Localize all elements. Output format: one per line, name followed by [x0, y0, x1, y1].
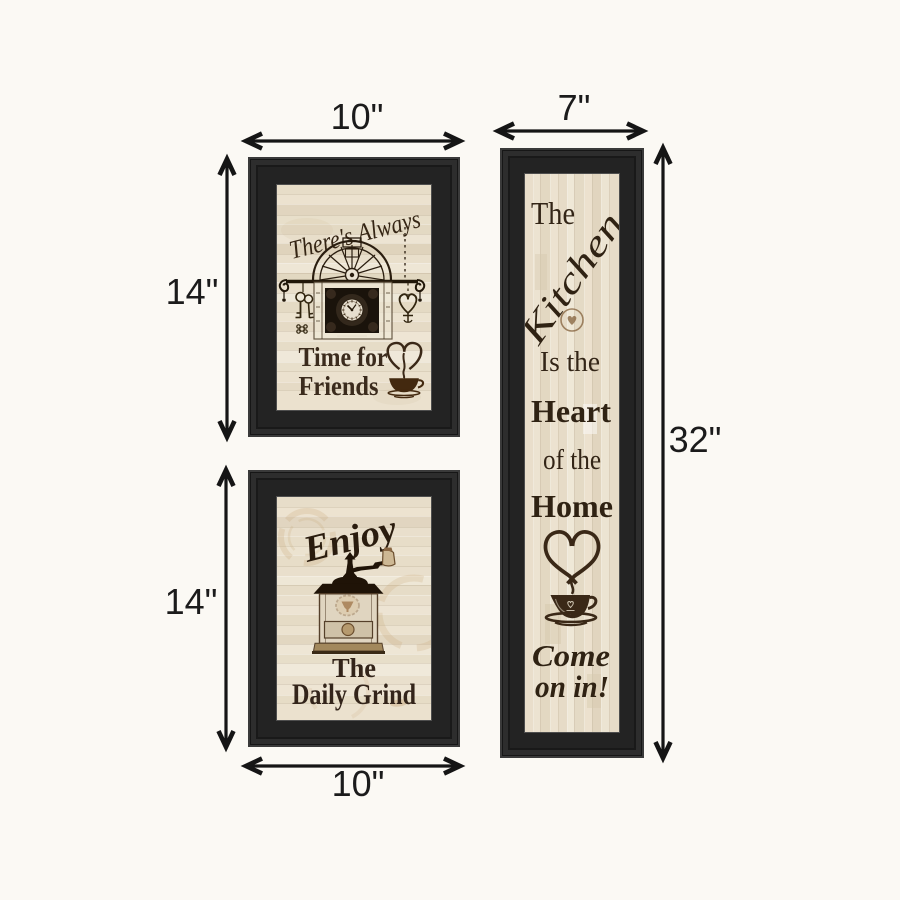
- svg-text:Home: Home: [531, 488, 613, 524]
- svg-text:Time for: Time for: [299, 342, 388, 372]
- svg-text:Friends: Friends: [299, 371, 379, 401]
- svg-text:on in!: on in!: [535, 669, 609, 704]
- svg-text:Daily Grind: Daily Grind: [292, 678, 416, 711]
- svg-text:of the: of the: [543, 444, 601, 476]
- svg-text:Is the: Is the: [540, 346, 600, 378]
- svg-text:Come: Come: [532, 638, 610, 673]
- svg-text:The: The: [531, 195, 575, 231]
- svg-text:Heart: Heart: [531, 393, 611, 429]
